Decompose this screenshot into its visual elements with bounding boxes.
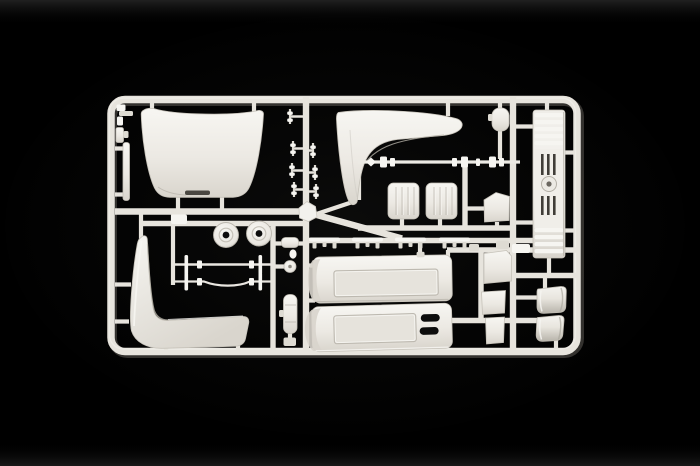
part-radiator-grille bbox=[533, 110, 565, 258]
grille-emblem bbox=[542, 177, 557, 192]
door-slot-top bbox=[421, 314, 440, 322]
part-small-oval bbox=[289, 249, 296, 258]
part-small-tab bbox=[171, 215, 187, 225]
part-clip bbox=[309, 238, 340, 249]
part-small-panel-b bbox=[482, 291, 506, 315]
part-door-upper bbox=[308, 251, 453, 303]
part-small-fitting bbox=[496, 241, 509, 250]
roof-rear-slot bbox=[185, 191, 210, 196]
grille-upper-slots bbox=[541, 154, 556, 175]
grille-lower-slots bbox=[541, 196, 556, 215]
part-disc bbox=[284, 261, 296, 273]
part-seat-back-left bbox=[388, 183, 419, 219]
part-small-fitting bbox=[512, 244, 530, 253]
part-clip bbox=[439, 238, 470, 249]
part-small-fitting bbox=[469, 244, 479, 251]
part-wheel-hub-left bbox=[214, 223, 239, 248]
part-door-lower bbox=[304, 303, 452, 352]
part-pillar-strip bbox=[123, 143, 130, 201]
part-small-block bbox=[282, 238, 299, 248]
photo-canvas bbox=[0, 0, 700, 466]
part-mudguard-upper bbox=[537, 286, 566, 313]
door-lower-recess bbox=[334, 314, 417, 344]
sprue-photo bbox=[0, 0, 700, 466]
part-seat-back-right bbox=[426, 183, 457, 219]
door-slot-bottom bbox=[420, 327, 439, 335]
part-small-panel-a bbox=[484, 251, 512, 284]
part-cab-roof bbox=[141, 108, 263, 197]
part-wheel-hub-right bbox=[247, 221, 272, 246]
part-small-block bbox=[284, 338, 297, 347]
part-mudguard-lower bbox=[536, 315, 564, 341]
photo-bottom-band bbox=[0, 442, 700, 466]
part-small-panel-c bbox=[486, 317, 505, 344]
photo-top-band bbox=[0, 0, 700, 26]
door-upper-recess bbox=[334, 269, 438, 297]
part-clip bbox=[395, 238, 426, 249]
part-clip bbox=[352, 238, 383, 249]
